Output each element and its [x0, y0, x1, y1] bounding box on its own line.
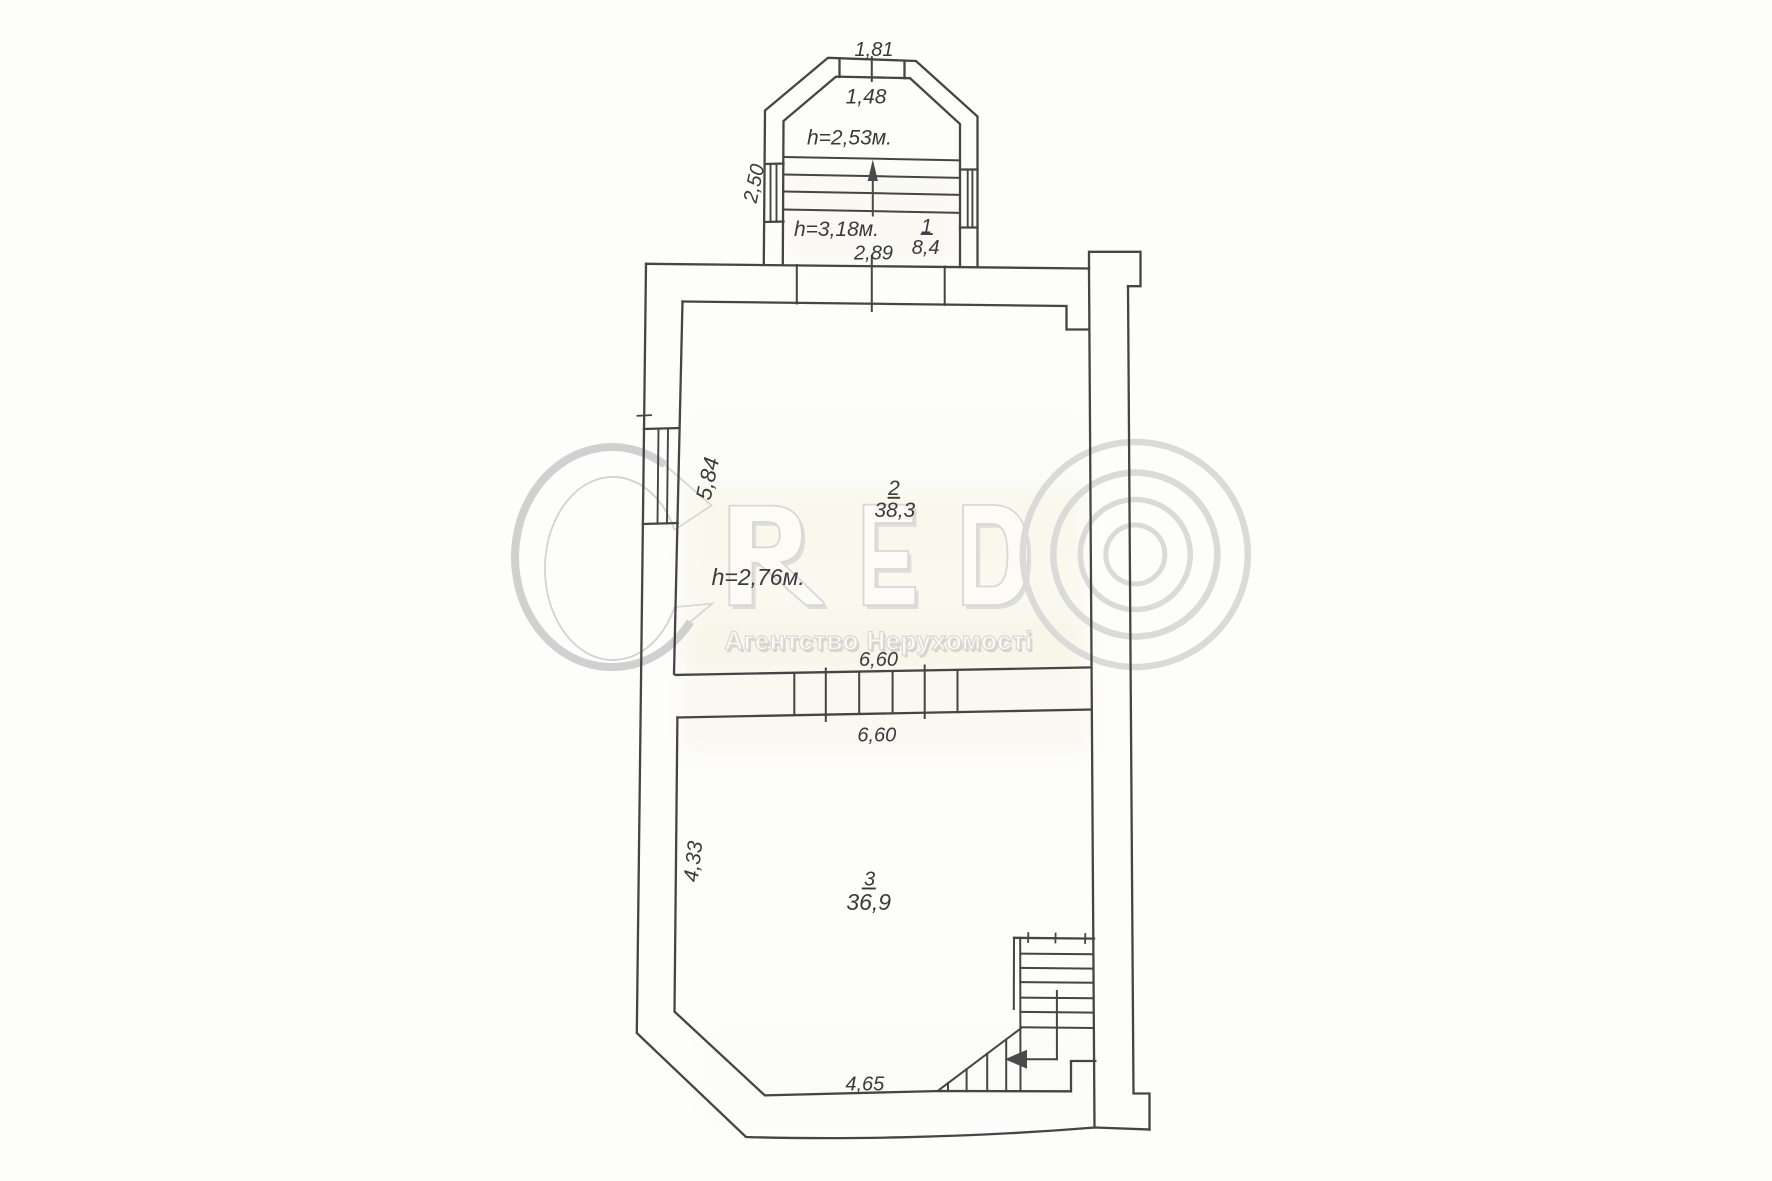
svg-text:3: 3 [864, 869, 875, 891]
svg-text:1,81: 1,81 [855, 39, 894, 61]
svg-text:4,33: 4,33 [680, 839, 708, 883]
svg-text:h=2,76м.: h=2,76м. [712, 564, 805, 590]
svg-text:6,60: 6,60 [857, 725, 896, 747]
svg-text:36,9: 36,9 [846, 889, 891, 915]
svg-text:6,60: 6,60 [859, 649, 898, 671]
svg-text:2,89: 2,89 [853, 242, 893, 264]
svg-text:38,3: 38,3 [874, 499, 915, 522]
svg-text:2: 2 [887, 477, 900, 500]
svg-text:h=2,53м.: h=2,53м. [807, 126, 892, 149]
svg-text:1,48: 1,48 [846, 86, 887, 109]
svg-text:4,65: 4,65 [845, 1074, 885, 1096]
svg-text:8,4: 8,4 [912, 237, 940, 259]
svg-text:h=3,18м.: h=3,18м. [794, 218, 879, 241]
